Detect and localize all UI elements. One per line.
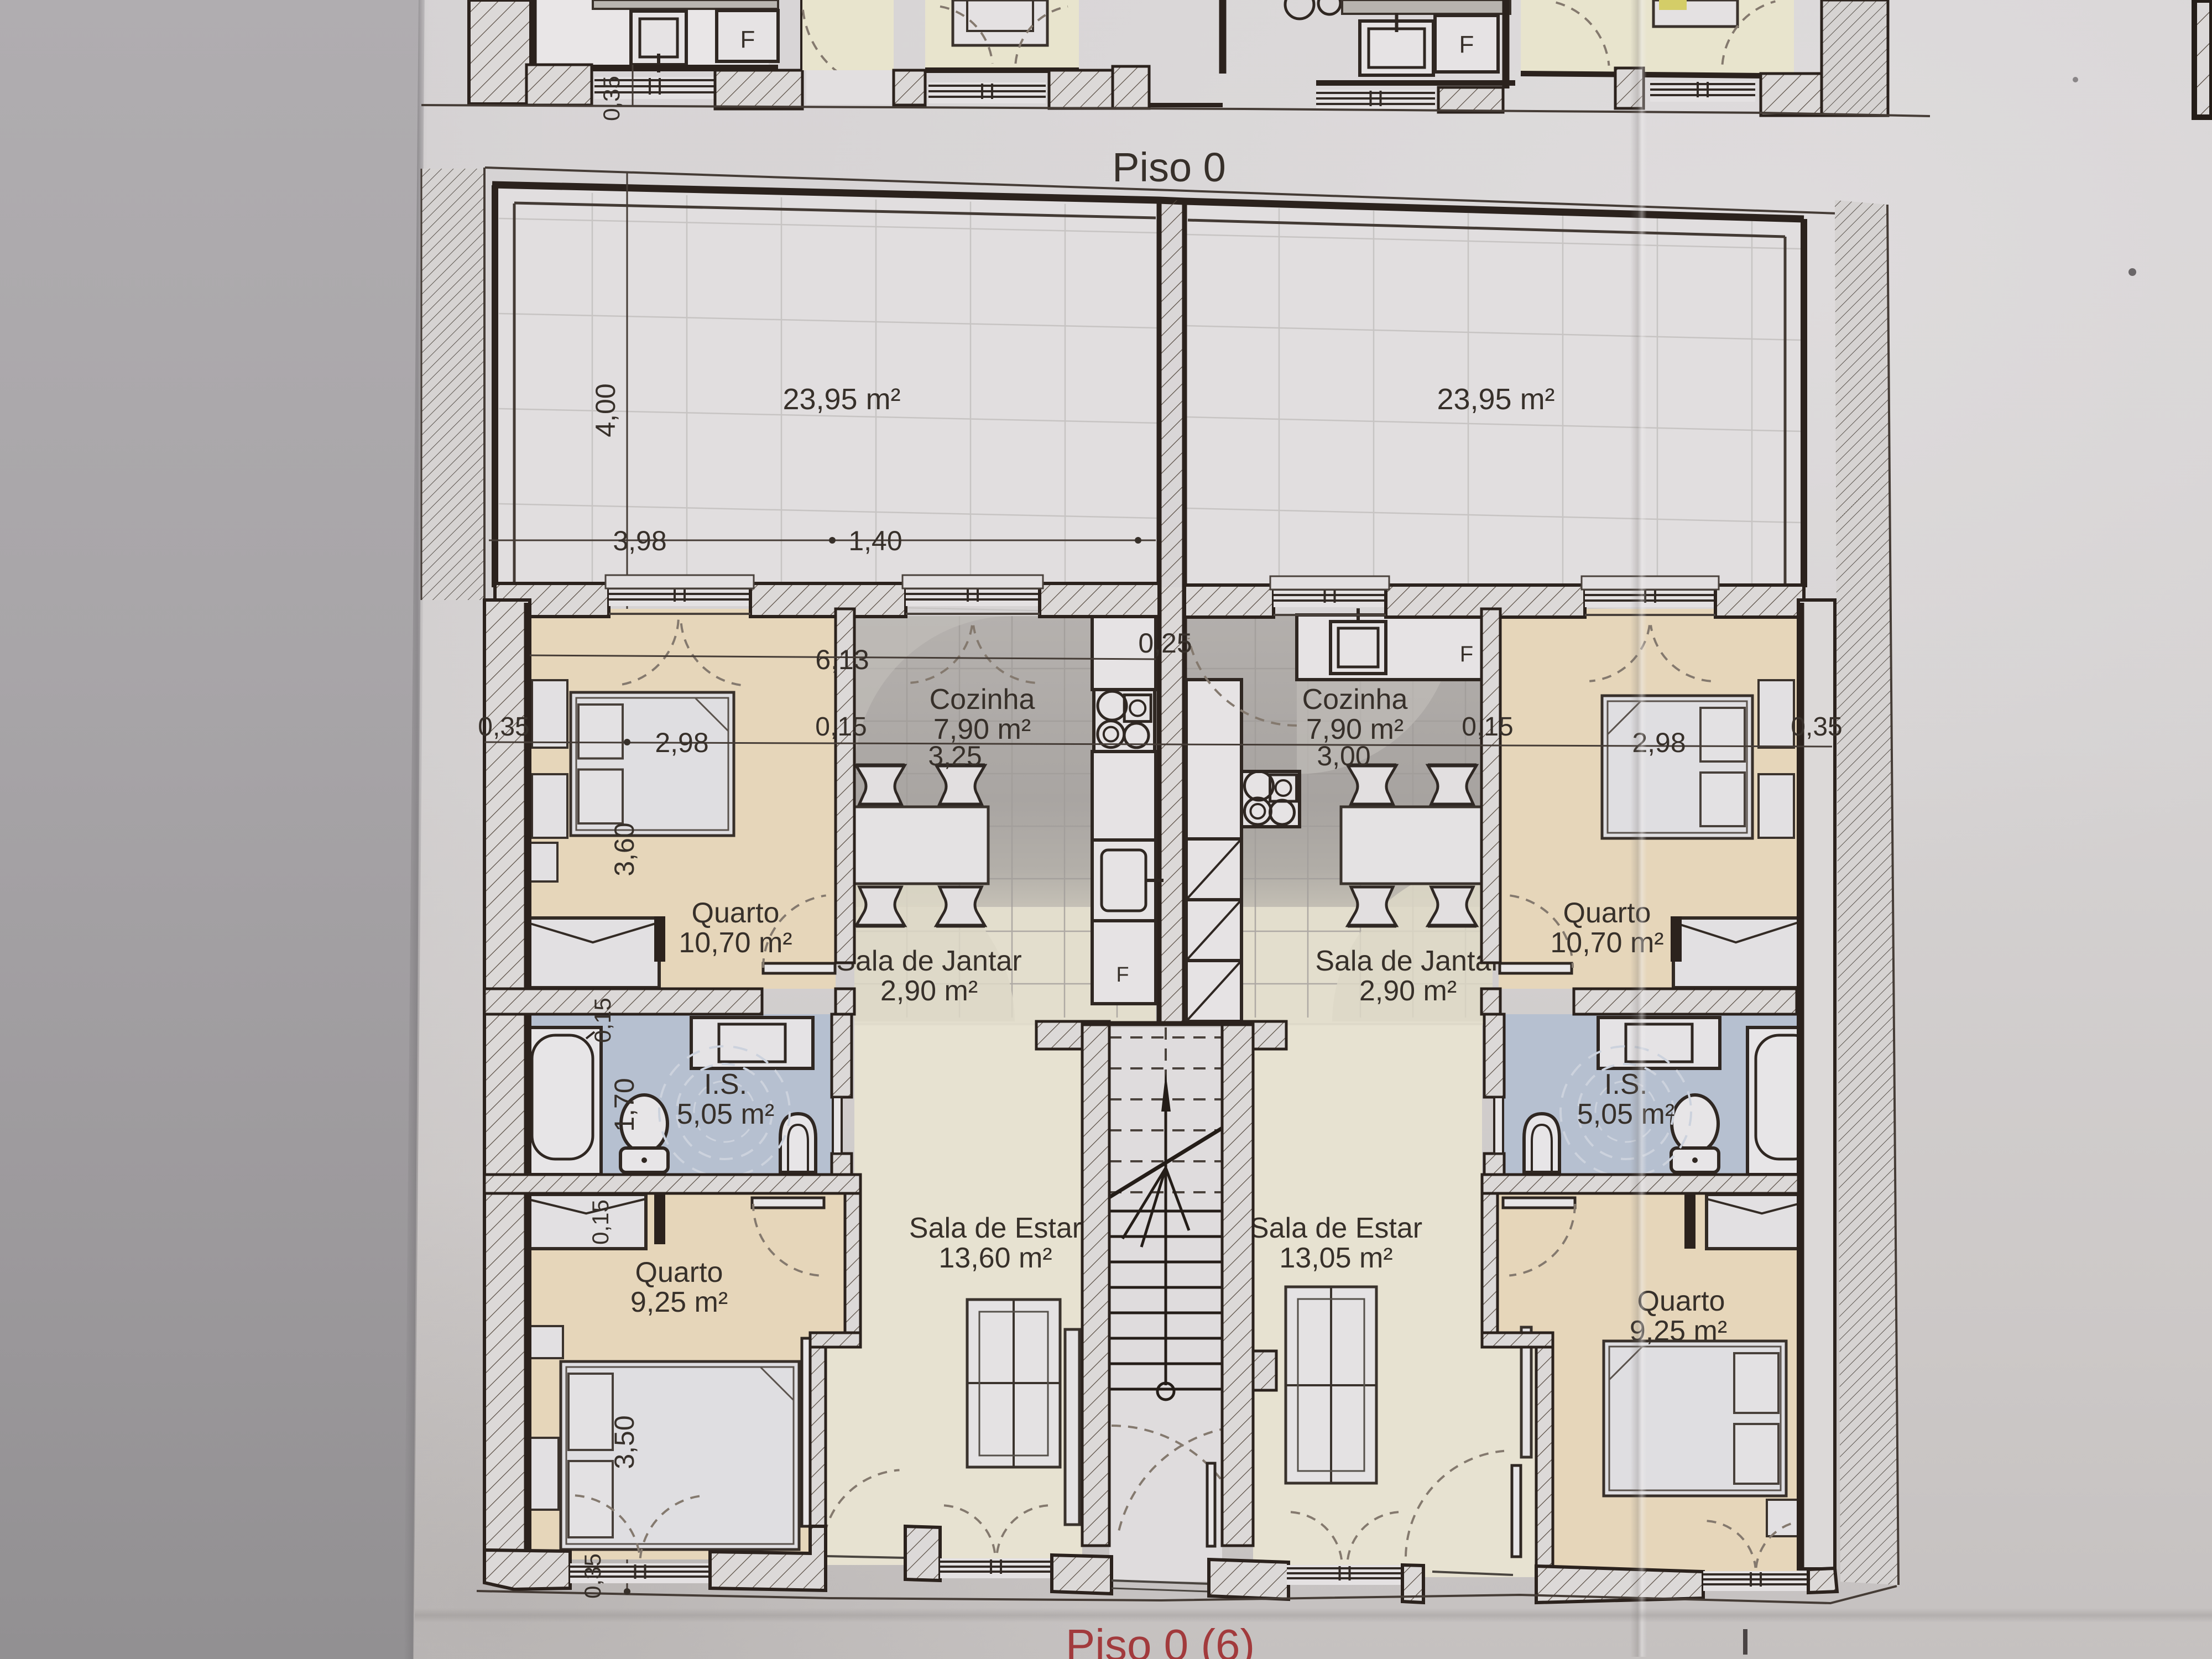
svg-text:I.S.: I.S. — [704, 1068, 747, 1100]
svg-text:0,35: 0,35 — [598, 76, 624, 121]
svg-text:0,15: 0,15 — [589, 998, 615, 1043]
svg-text:Quarto: Quarto — [635, 1256, 723, 1288]
svg-text:Cozinha: Cozinha — [1302, 684, 1408, 716]
svg-text:1,70: 1,70 — [609, 1078, 640, 1131]
svg-text:0,15: 0,15 — [815, 712, 867, 742]
svg-text:Sala de Estar: Sala de Estar — [909, 1212, 1082, 1244]
svg-text:F: F — [740, 26, 755, 53]
svg-text:2,90 m²: 2,90 m² — [880, 975, 978, 1007]
svg-text:9,25 m²: 9,25 m² — [630, 1286, 728, 1318]
svg-text:Quarto: Quarto — [1637, 1285, 1725, 1317]
svg-text:Sala de Jantar: Sala de Jantar — [1315, 945, 1500, 977]
svg-text:3,60: 3,60 — [609, 822, 640, 876]
svg-text:F: F — [1460, 642, 1473, 666]
svg-text:5,05 m²: 5,05 m² — [1577, 1098, 1674, 1130]
svg-text:3,00: 3,00 — [1317, 740, 1370, 771]
svg-text:Piso 0: Piso 0 — [1112, 144, 1226, 190]
svg-text:4,00: 4,00 — [590, 383, 621, 437]
svg-text:0,25: 0,25 — [1138, 628, 1192, 659]
svg-text:1,40: 1,40 — [848, 525, 902, 556]
svg-text:Sala de Jantar: Sala de Jantar — [836, 945, 1021, 977]
svg-text:10,70 m²: 10,70 m² — [679, 927, 792, 959]
svg-text:F: F — [1116, 963, 1129, 987]
svg-text:3,25: 3,25 — [928, 740, 982, 771]
svg-text:6,13: 6,13 — [815, 644, 869, 675]
svg-text:0,35: 0,35 — [580, 1553, 606, 1599]
svg-text:0,35: 0,35 — [1791, 712, 1842, 742]
svg-text:2,98: 2,98 — [655, 727, 708, 758]
svg-text:23,95 m²: 23,95 m² — [782, 383, 900, 416]
svg-text:0,15: 0,15 — [1462, 712, 1513, 742]
svg-text:13,05 m²: 13,05 m² — [1279, 1242, 1392, 1274]
svg-text:3,50: 3,50 — [609, 1415, 640, 1469]
svg-text:Sala de Estar: Sala de Estar — [1250, 1212, 1422, 1244]
svg-text:F: F — [1459, 31, 1474, 58]
svg-text:Quarto: Quarto — [692, 897, 780, 929]
svg-text:2,90 m²: 2,90 m² — [1359, 975, 1457, 1007]
svg-text:13,60 m²: 13,60 m² — [938, 1242, 1052, 1274]
svg-text:Piso 0 (6): Piso 0 (6) — [1066, 1620, 1255, 1659]
svg-text:23,95 m²: 23,95 m² — [1437, 383, 1554, 416]
svg-text:0,15: 0,15 — [587, 1199, 613, 1245]
svg-text:3,98: 3,98 — [613, 525, 666, 556]
svg-text:5,05 m²: 5,05 m² — [677, 1098, 774, 1130]
svg-text:Cozinha: Cozinha — [930, 684, 1035, 716]
svg-text:0,35: 0,35 — [478, 712, 529, 742]
